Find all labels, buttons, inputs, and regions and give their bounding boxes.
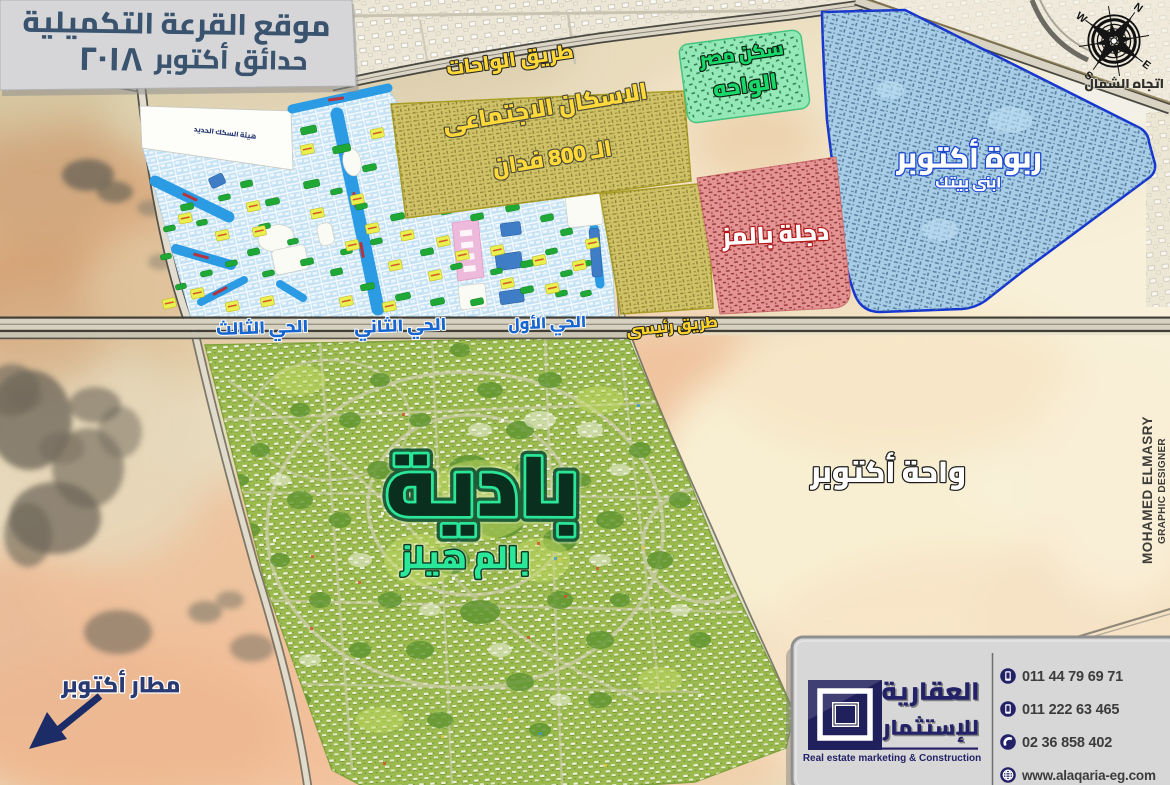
svg-text:GRAPHIC DESIGNER: GRAPHIC DESIGNER <box>1157 438 1168 544</box>
svg-text:MOHAMED ELMASRY: MOHAMED ELMASRY <box>1140 416 1155 564</box>
svg-text:02 36 858 402: 02 36 858 402 <box>1022 735 1112 751</box>
svg-text:www.alaqaria-eg.com: www.alaqaria-eg.com <box>1021 768 1156 783</box>
svg-text:011 222 63 465: 011 222 63 465 <box>1022 702 1119 718</box>
svg-text:Real estate marketing & Constr: Real estate marketing & Construction <box>803 753 981 764</box>
svg-text:011 44 79 69 71: 011 44 79 69 71 <box>1022 669 1123 685</box>
